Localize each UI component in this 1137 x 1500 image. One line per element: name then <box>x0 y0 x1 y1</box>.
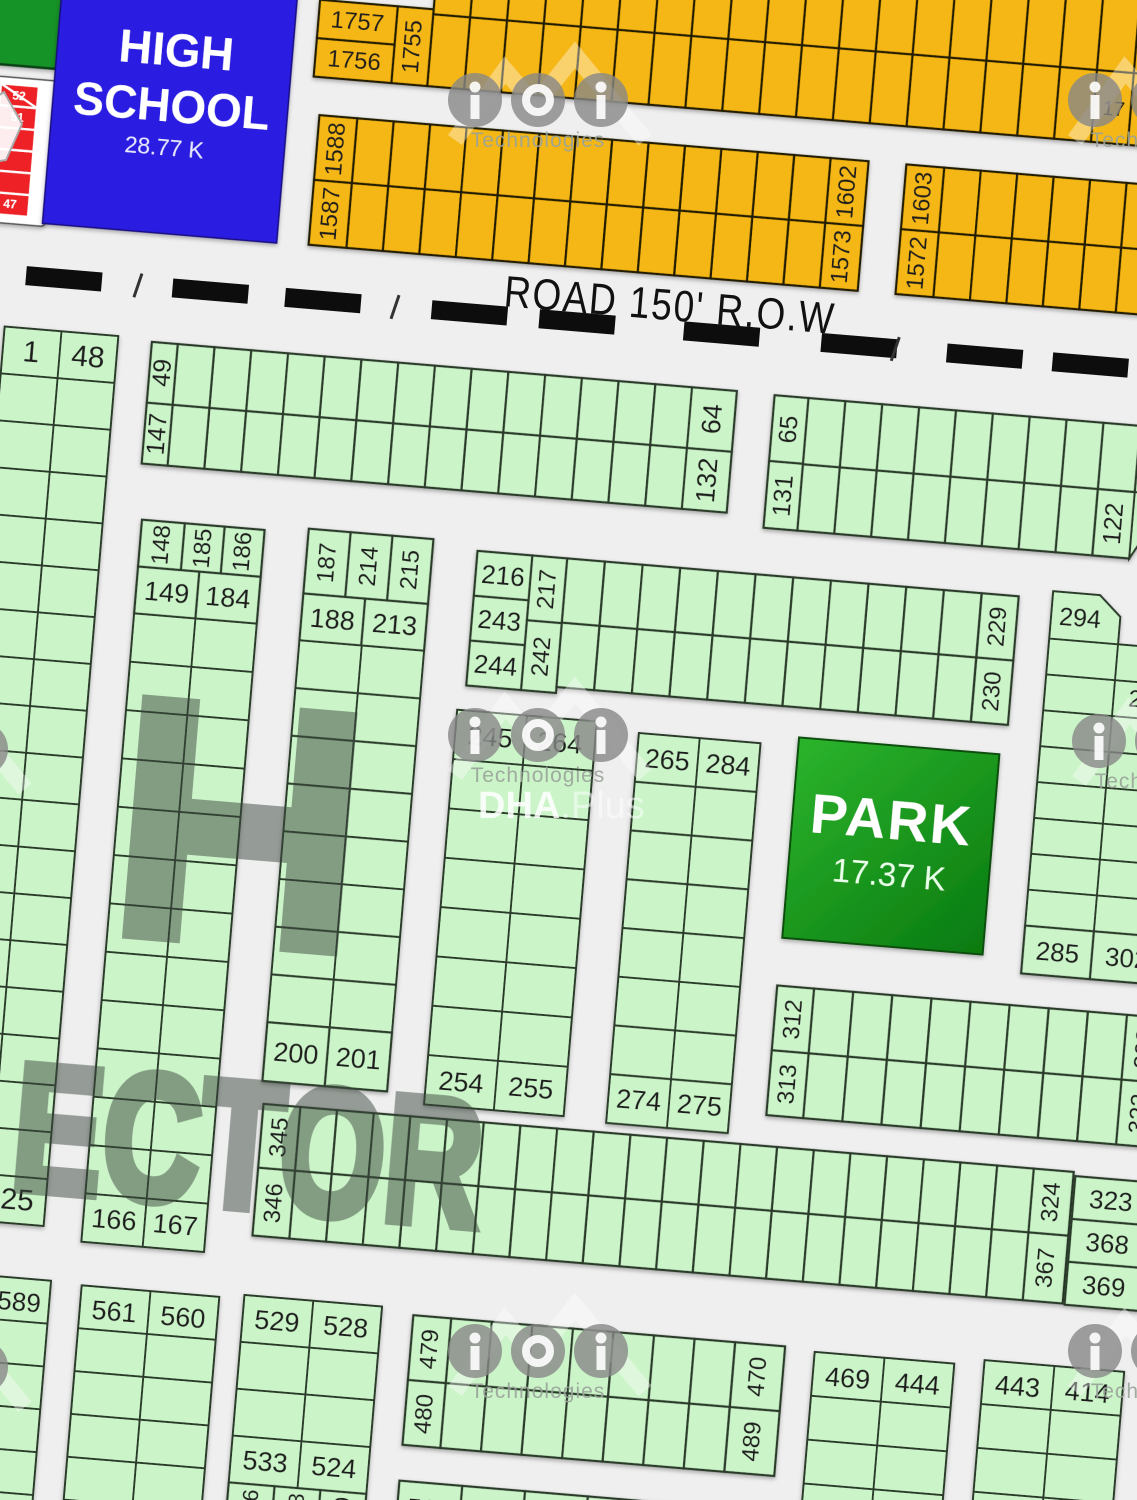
svg-text:1572: 1572 <box>902 235 933 290</box>
svg-text:469: 469 <box>824 1361 871 1395</box>
svg-text:188: 188 <box>309 603 356 637</box>
svg-text:444: 444 <box>894 1367 941 1401</box>
svg-text:243: 243 <box>476 604 522 638</box>
svg-text:Technologies: Technologies <box>471 1380 606 1403</box>
svg-text:480: 480 <box>409 1393 439 1435</box>
svg-text:489: 489 <box>737 1420 767 1462</box>
svg-text:324: 324 <box>1036 1181 1066 1223</box>
svg-text:479: 479 <box>414 1328 444 1370</box>
svg-text:184: 184 <box>204 581 251 615</box>
svg-text:229: 229 <box>982 606 1012 648</box>
svg-text:HIGH: HIGH <box>117 19 236 80</box>
svg-text:149: 149 <box>143 576 190 610</box>
svg-text:52: 52 <box>12 88 27 103</box>
svg-text:302: 302 <box>1104 941 1137 975</box>
svg-text:255: 255 <box>507 1072 554 1106</box>
svg-text:1603: 1603 <box>907 171 938 226</box>
svg-text:284: 284 <box>704 748 751 782</box>
svg-text:313: 313 <box>772 1063 802 1105</box>
svg-text:367: 367 <box>1030 1247 1060 1289</box>
svg-text:589: 589 <box>0 1285 42 1319</box>
svg-text:1756: 1756 <box>326 45 381 76</box>
svg-text:185: 185 <box>188 527 218 569</box>
svg-text:1602: 1602 <box>831 164 862 219</box>
svg-text:1: 1 <box>21 335 40 369</box>
svg-text:64: 64 <box>696 403 728 435</box>
svg-text:131: 131 <box>768 474 799 518</box>
svg-text:528: 528 <box>322 1310 369 1344</box>
svg-text:533: 533 <box>241 1445 288 1479</box>
svg-text:1757: 1757 <box>330 6 385 37</box>
svg-text:47: 47 <box>3 197 18 212</box>
svg-text:49: 49 <box>147 358 177 388</box>
svg-text:1587: 1587 <box>315 186 346 241</box>
svg-text:186: 186 <box>228 531 258 573</box>
svg-text:215: 215 <box>395 549 425 591</box>
svg-text:470: 470 <box>742 1356 772 1398</box>
svg-text:443: 443 <box>994 1370 1041 1404</box>
svg-text:529: 529 <box>253 1304 300 1338</box>
svg-text:294: 294 <box>1058 603 1102 634</box>
svg-text:244: 244 <box>473 649 519 683</box>
svg-text:242: 242 <box>526 636 556 678</box>
svg-text:368: 368 <box>1084 1227 1130 1261</box>
svg-text:274: 274 <box>615 1084 662 1118</box>
svg-text:213: 213 <box>371 608 418 642</box>
svg-text:DHA.Plus: DHA.Plus <box>478 785 645 827</box>
svg-text:122: 122 <box>1098 502 1129 546</box>
svg-text:265: 265 <box>644 743 691 777</box>
svg-text:187: 187 <box>312 542 342 584</box>
svg-text:ECTOR: ECTOR <box>5 1026 490 1266</box>
svg-text:312: 312 <box>778 998 808 1040</box>
svg-text:Technologies: Technologies <box>1095 770 1137 793</box>
svg-text:Technologies: Technologies <box>1091 129 1137 152</box>
svg-text:516: 516 <box>236 1488 264 1500</box>
svg-text:148: 148 <box>146 524 176 566</box>
svg-text:Technologies: Technologies <box>471 764 606 787</box>
svg-text:561: 561 <box>90 1295 137 1329</box>
svg-text:65: 65 <box>774 414 804 444</box>
svg-text:369: 369 <box>1081 1270 1127 1304</box>
svg-text:Technologies: Technologies <box>471 129 606 152</box>
svg-text:1755: 1755 <box>397 19 428 74</box>
svg-text:230: 230 <box>977 670 1007 712</box>
svg-text:1588: 1588 <box>320 121 351 176</box>
svg-text:Technologies: Technologies <box>1091 1380 1137 1403</box>
svg-text:214: 214 <box>354 545 384 587</box>
svg-text:285: 285 <box>1035 936 1081 970</box>
svg-text:48: 48 <box>70 339 106 375</box>
svg-text:560: 560 <box>159 1301 206 1335</box>
svg-text:275: 275 <box>676 1089 723 1123</box>
svg-text:524: 524 <box>310 1451 357 1485</box>
svg-text:217: 217 <box>532 568 562 610</box>
svg-text:132: 132 <box>690 457 724 504</box>
svg-text:323: 323 <box>1088 1184 1134 1218</box>
svg-text:322: 322 <box>1124 1093 1137 1135</box>
svg-text:1573: 1573 <box>826 229 857 284</box>
svg-text:216: 216 <box>480 559 526 593</box>
